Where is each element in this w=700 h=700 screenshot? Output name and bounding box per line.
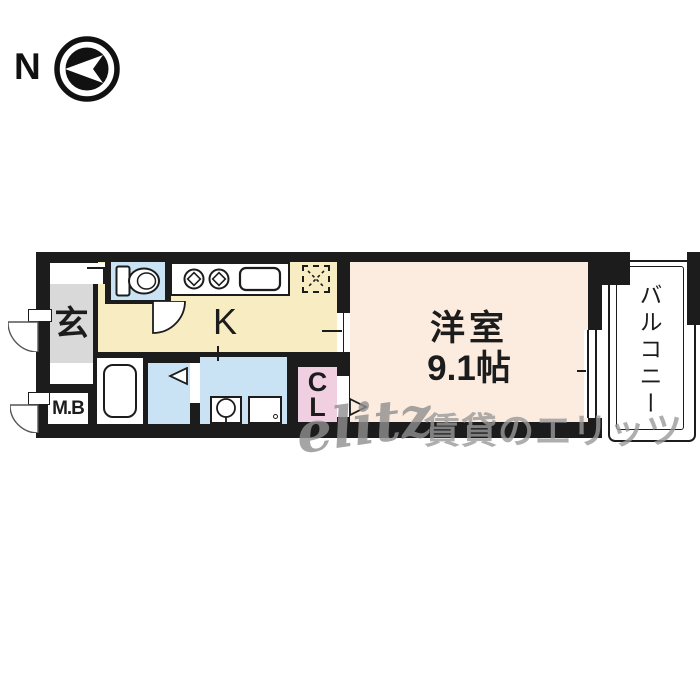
window-line <box>595 330 597 418</box>
meter-box-door-arc <box>10 404 39 433</box>
sliding-door-tick <box>322 330 342 332</box>
meter-box-label: M.B <box>48 393 88 424</box>
washroom-door-direction-icon <box>168 367 188 386</box>
entrance-door-arc <box>8 321 39 352</box>
washroom-door-leaf <box>190 363 200 403</box>
bathtub-icon <box>103 364 137 418</box>
washer-tap-dot <box>273 414 278 419</box>
kitchen-sink-icon <box>240 268 280 290</box>
sliding-door-track-line <box>343 313 344 352</box>
toilet-icon <box>115 265 163 298</box>
thin-wall-line <box>103 267 105 284</box>
balcony-label: バルコニー <box>616 280 682 420</box>
north-arrow-icon <box>52 34 122 104</box>
toilet-door-arc <box>152 301 186 335</box>
entrance-step <box>50 363 93 384</box>
window-line <box>587 330 589 418</box>
washbasin-icon <box>210 396 242 424</box>
entrance-label: 玄 <box>50 296 93 345</box>
western-room-size: 9.1帖 <box>360 340 578 391</box>
top-wall-extension <box>588 252 630 285</box>
sanitary-door-tick <box>217 346 219 361</box>
closet-door-direction-icon <box>349 398 368 417</box>
kitchen-label: K <box>190 298 260 346</box>
north-label: N <box>14 46 41 88</box>
neighbor-wall-stub <box>687 252 700 325</box>
window-tick <box>577 370 586 372</box>
refrigerator-space-icon <box>302 265 330 293</box>
closet-door-leaf <box>337 375 349 418</box>
washing-machine-space-icon <box>248 396 282 424</box>
kitchen-counter <box>170 262 290 296</box>
closet-label: L <box>298 394 337 420</box>
